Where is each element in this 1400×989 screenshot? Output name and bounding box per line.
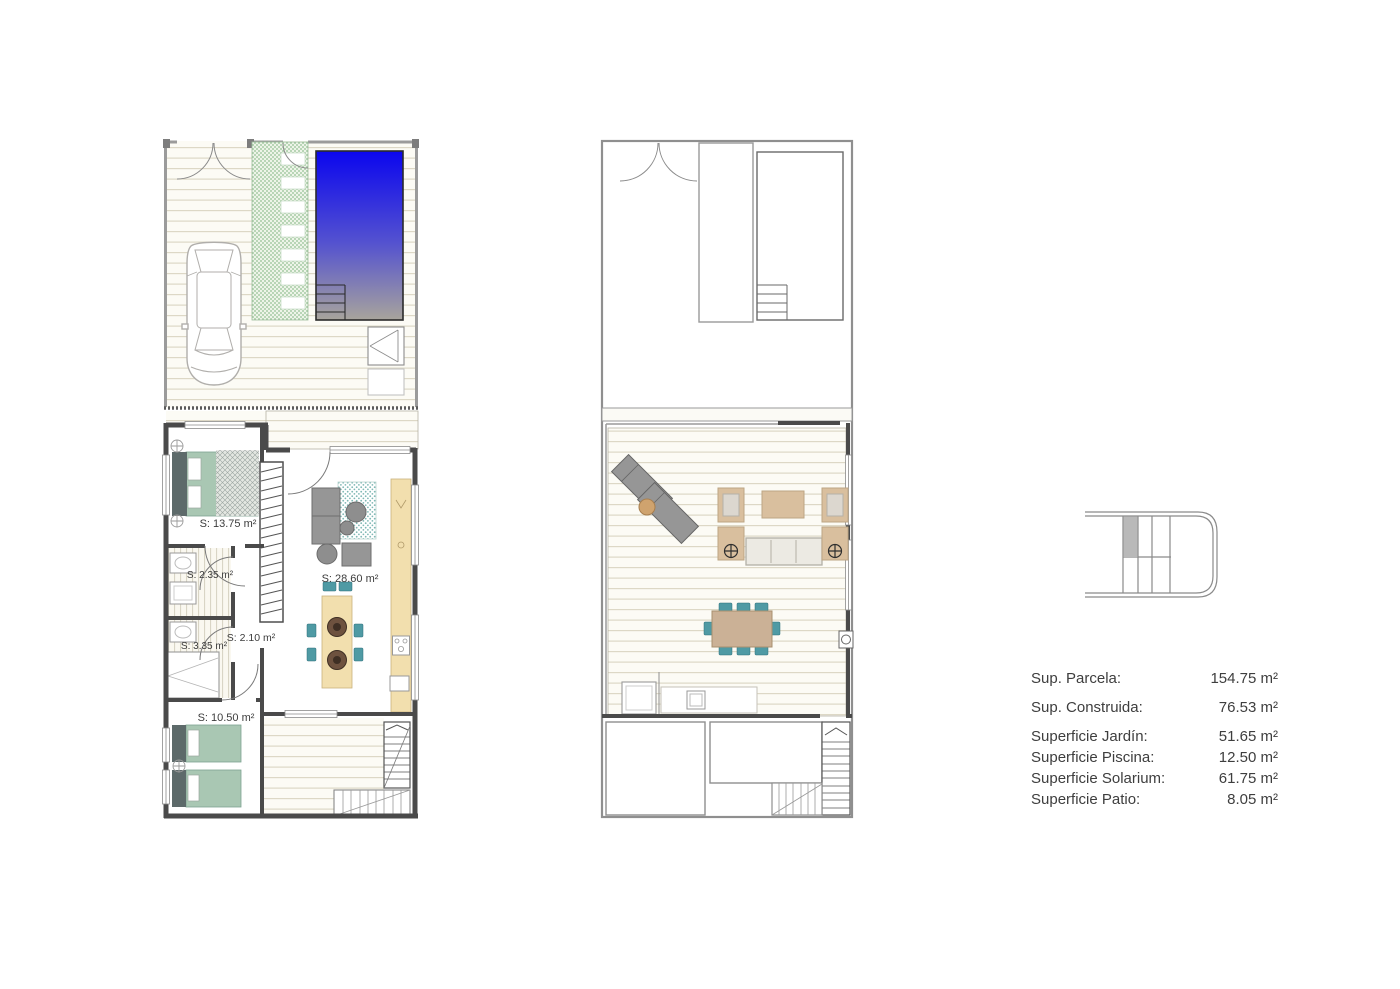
summary-value: 76.53 m² [1219,697,1278,718]
car [182,242,246,385]
pool-void-outline [757,152,843,320]
wall-cap [163,139,170,148]
main-staircase [260,462,283,622]
covered-porch [266,411,418,449]
coffee-table-round [346,502,366,522]
area-summary: Sup. Parcela: 154.75 m² Sup. Construida:… [1031,668,1278,810]
living-room [312,482,376,566]
cooktop [393,636,410,655]
floorplan-drawing: S: 13.75 m² S: 2.35 m² S: 2.10 m² S: 3.3… [0,0,1400,989]
summary-label: Superficie Solarium: [1031,768,1165,789]
master-bedroom [171,440,259,527]
block-outline-outer [1085,512,1217,597]
summary-label: Sup. Parcela: [1031,668,1121,689]
summary-value: 12.50 m² [1219,747,1278,768]
summary-label: Superficie Patio: [1031,789,1140,810]
armchair [718,488,744,522]
patio-stairs-up [384,722,410,788]
kitchen-sink [390,676,409,691]
stair-landing [772,783,822,815]
summary-row: Superficie Piscina: 12.50 m² [1031,747,1278,768]
location-diagram [1085,512,1217,597]
ground-floor-plan: S: 13.75 m² S: 2.35 m² S: 2.10 m² S: 3.3… [163,139,420,818]
first-floor-plan [602,141,853,817]
bathroom-2 [167,620,231,698]
swimming-pool [316,151,403,320]
side-table [639,499,655,515]
summary-label: Superficie Piscina: [1031,747,1154,768]
pillow [188,458,201,480]
kitchen-island [322,596,352,688]
armchair [822,488,848,522]
void-corridor [699,143,753,322]
side-table-round [340,521,354,535]
parasol-table-right [822,527,848,560]
stairwell [822,722,850,815]
summary-row: Sup. Parcela: 154.75 m² [1031,668,1278,689]
summary-row: Superficie Jardín: 51.65 m² [1031,726,1278,747]
bathroom-1 [168,548,231,616]
bed-headboard [172,452,187,516]
dining-table [712,611,772,647]
wall-light [173,760,185,772]
summary-value: 154.75 m² [1210,668,1278,689]
patio-stairs-lower [334,790,410,816]
block-outline-inner [1085,516,1213,593]
pillow [188,486,201,508]
summary-value: 61.75 m² [1219,768,1278,789]
summary-value: 51.65 m² [1219,726,1278,747]
label-bath-2: S: 3.35 m² [181,641,228,652]
mid-band [602,408,852,421]
pouf [317,544,337,564]
summary-row: Superficie Solarium: 61.75 m² [1031,768,1278,789]
summary-label: Sup. Construida: [1031,697,1143,718]
label-bath-1: S: 2.35 m² [187,570,234,581]
armchair [342,543,371,566]
bedroom-2 [172,725,241,807]
bed-blanket [216,450,259,516]
label-living: S: 28.60 m² [322,573,379,585]
parasol-table-left [718,527,744,560]
rear-patio [264,718,410,816]
summary-row: Superficie Patio: 8.05 m² [1031,789,1278,810]
wall-cap [412,139,419,148]
label-bedroom-main: S: 13.75 m² [200,518,257,530]
outdoor-shower [368,327,404,395]
wall-box [839,631,853,648]
label-bedroom-2: S: 10.50 m² [198,712,255,724]
garden-path [252,142,308,320]
outdoor-sofa [746,538,822,565]
coffee-table [762,491,804,518]
shower-tray [167,652,219,698]
summary-label: Superficie Jardín: [1031,726,1148,747]
toilet [170,622,196,642]
outdoor-dining [704,603,780,655]
label-hall: S: 2.10 m² [227,632,276,644]
floorplan-sheet: S: 13.75 m² S: 2.35 m² S: 2.10 m² S: 3.3… [0,0,1400,989]
summary-row: Sup. Construida: 76.53 m² [1031,697,1278,718]
highlighted-plot [1124,517,1138,558]
summary-value: 8.05 m² [1227,789,1278,810]
